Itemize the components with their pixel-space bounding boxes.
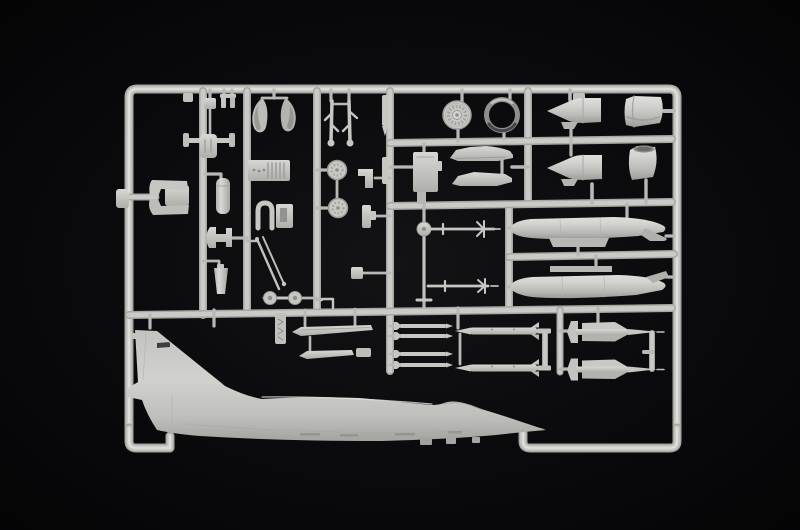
- gear-bay-cylinder: [216, 178, 230, 214]
- h-rail-2: [390, 202, 672, 206]
- intake-ring: [487, 99, 518, 130]
- main-wheel-lower: [329, 199, 348, 218]
- h-rail-1: [390, 139, 672, 143]
- main-wheel-upper: [328, 161, 347, 180]
- top-rail-nub-1: [183, 93, 193, 102]
- h-rail-3: [509, 254, 674, 257]
- small-clip: [351, 267, 363, 279]
- sprue-id-strip: [275, 313, 286, 344]
- wheel-hub-disc: [443, 101, 471, 129]
- jet-pipe: [625, 96, 663, 127]
- sprue-photo: [0, 0, 800, 530]
- ejection-seat: [276, 204, 293, 228]
- instrument-panel: [248, 160, 290, 181]
- left-mount-tab: [116, 189, 129, 208]
- small-fitting-a: [204, 98, 216, 109]
- antenna-blade-lower: [382, 157, 388, 184]
- exhaust-nozzle: [629, 145, 657, 180]
- sprue-photo-svg: [0, 0, 800, 530]
